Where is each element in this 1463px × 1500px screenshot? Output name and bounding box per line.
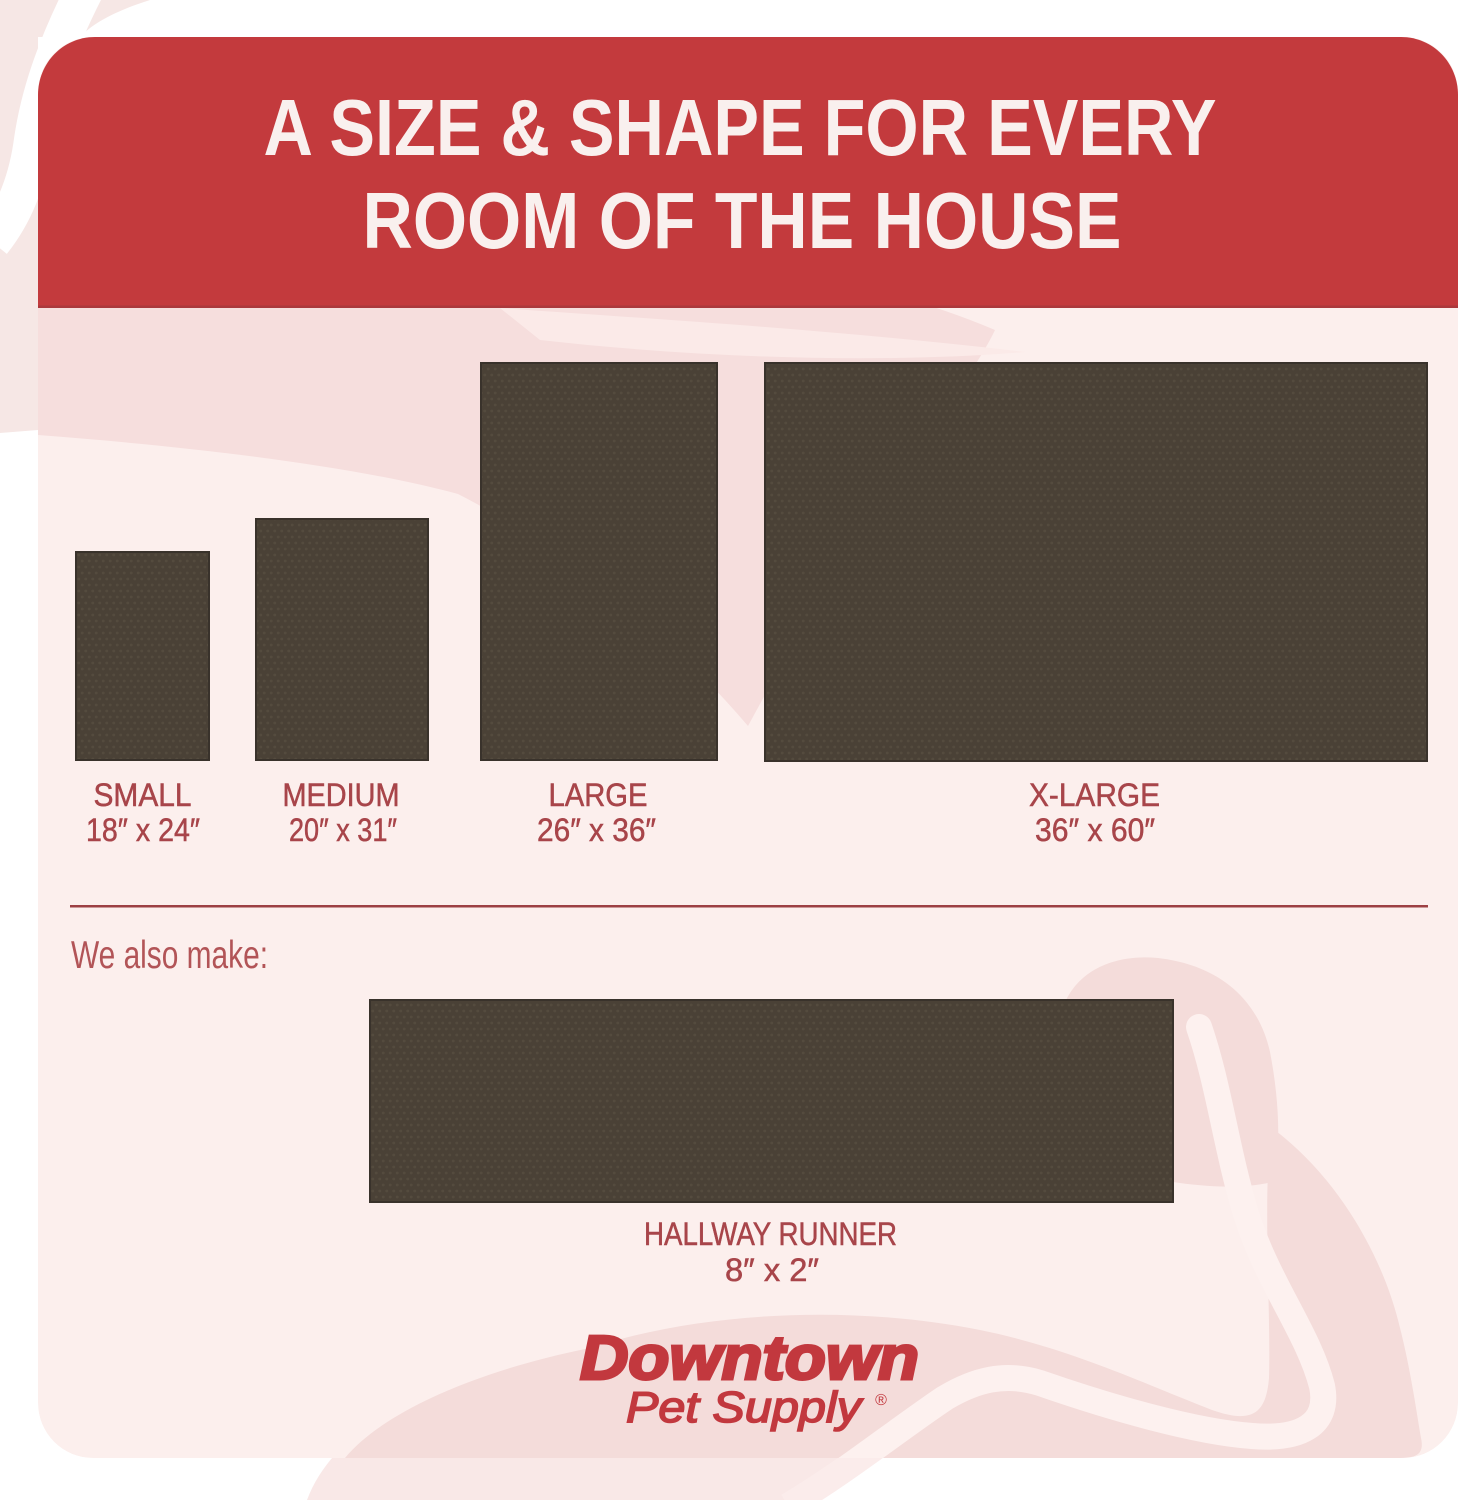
svg-text:18″ x 24″: 18″ x 24″ xyxy=(86,812,200,848)
svg-text:A SIZE & SHAPE FOR EVERY: A SIZE & SHAPE FOR EVERY xyxy=(264,83,1217,172)
svg-text:26″ x 36″: 26″ x 36″ xyxy=(537,812,656,848)
svg-text:Pet Supply: Pet Supply xyxy=(626,1383,864,1432)
svg-text:ROOM OF THE HOUSE: ROOM OF THE HOUSE xyxy=(363,176,1122,265)
svg-text:36″ x 60″: 36″ x 60″ xyxy=(1035,812,1155,848)
svg-text:SMALL: SMALL xyxy=(94,777,192,813)
svg-text:8″ x 2″: 8″ x 2″ xyxy=(725,1252,819,1288)
svg-text:HALLWAY RUNNER: HALLWAY RUNNER xyxy=(644,1216,897,1252)
svg-text:We also make:: We also make: xyxy=(71,934,268,977)
svg-text:20″ x 31″: 20″ x 31″ xyxy=(289,812,397,848)
svg-text:LARGE: LARGE xyxy=(549,777,648,813)
svg-text:MEDIUM: MEDIUM xyxy=(283,777,400,813)
svg-text:X-LARGE: X-LARGE xyxy=(1029,777,1160,813)
svg-text:®: ® xyxy=(875,1392,887,1409)
